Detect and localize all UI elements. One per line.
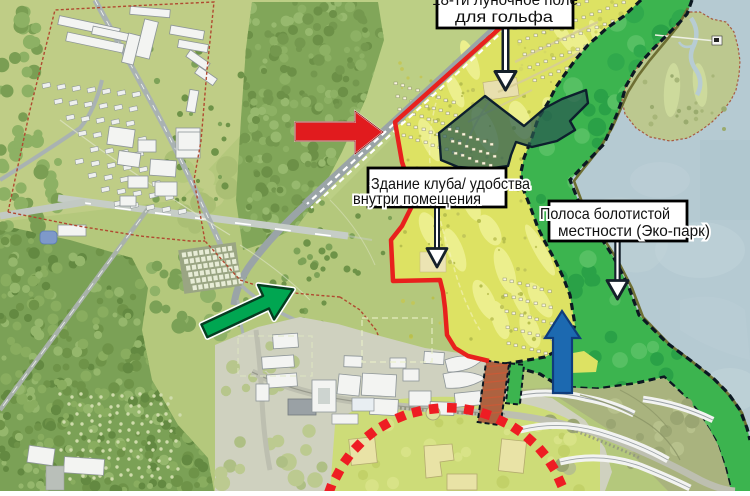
svg-text:для гольфа: для гольфа <box>455 9 553 26</box>
svg-text:Полоса болотистой: Полоса болотистой <box>540 206 670 223</box>
svg-text:внутри помещения: внутри помещения <box>353 191 481 208</box>
svg-text:местности (Эко-парк): местности (Эко-парк) <box>558 223 710 240</box>
svg-text:18-ти луночное поле: 18-ти луночное поле <box>432 0 578 9</box>
